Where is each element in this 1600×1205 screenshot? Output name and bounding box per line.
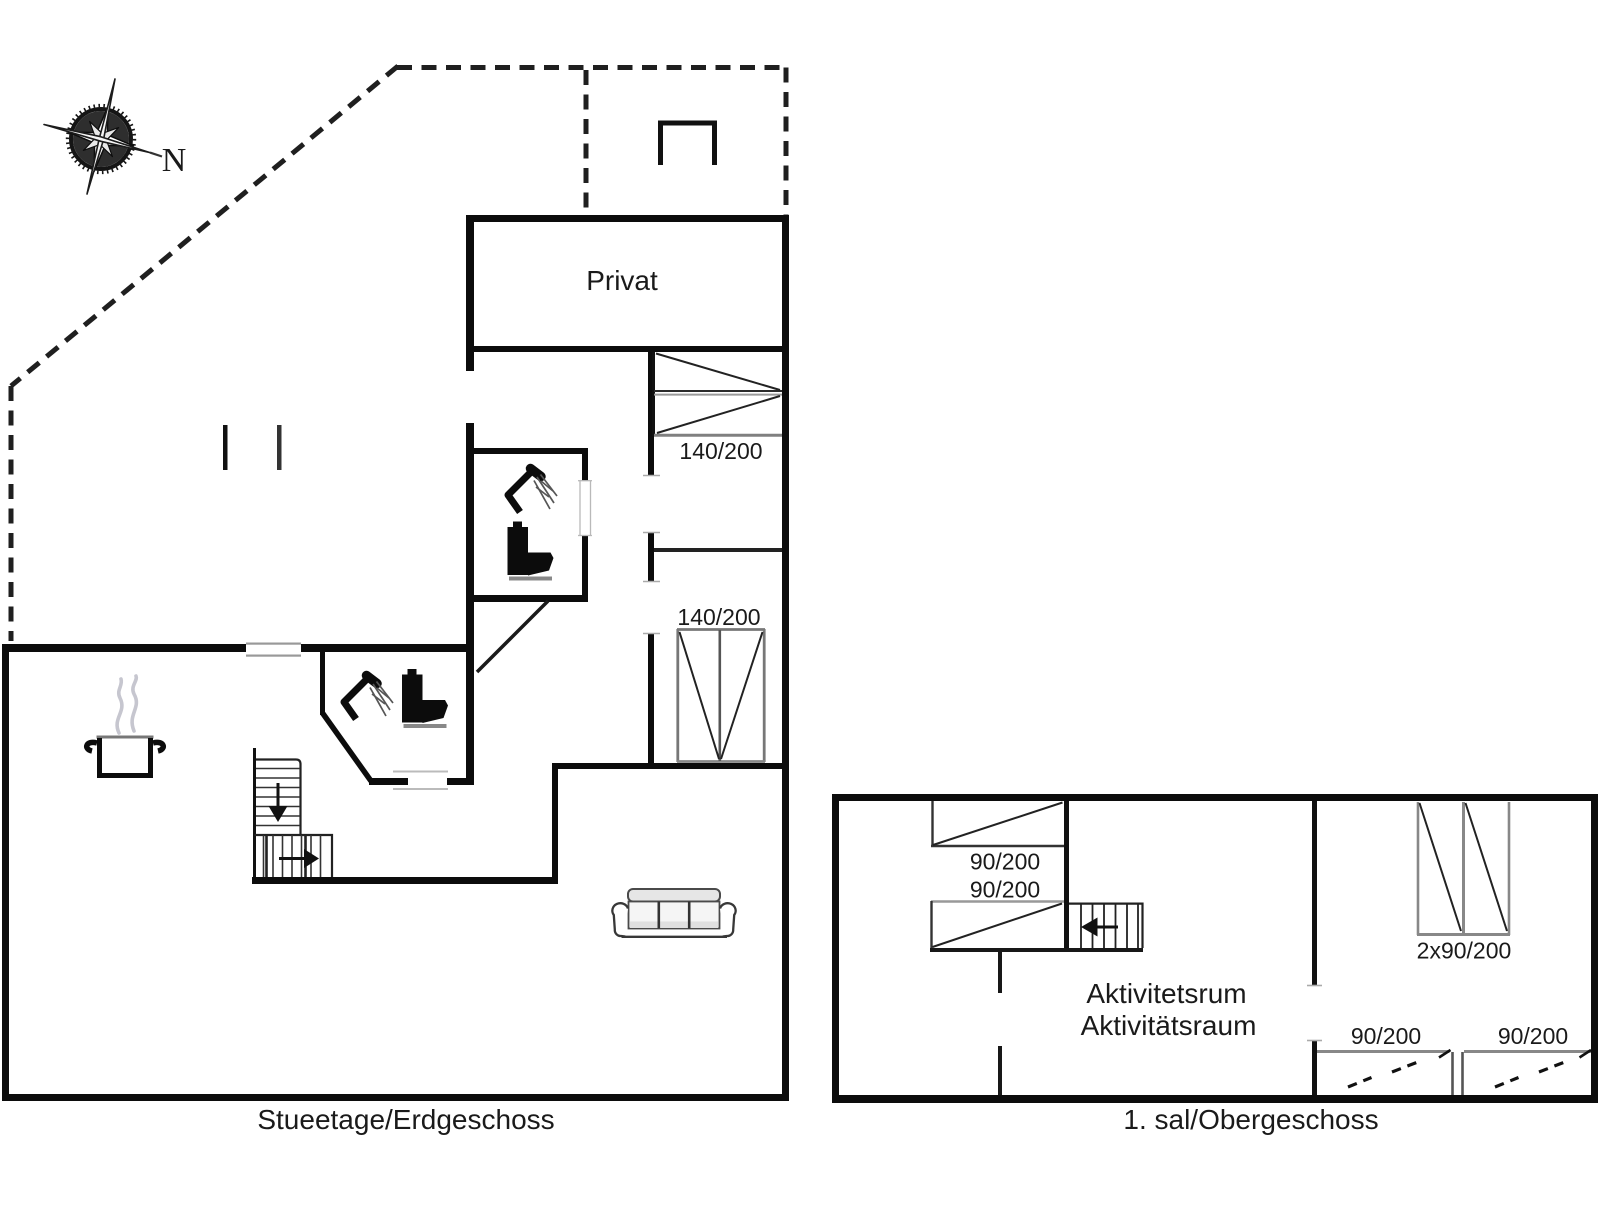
svg-text:Aktivitätsraum: Aktivitätsraum	[1081, 1010, 1257, 1041]
svg-text:140/200: 140/200	[677, 604, 760, 630]
svg-text:90/200: 90/200	[970, 849, 1040, 875]
svg-text:1. sal/Obergeschoss: 1. sal/Obergeschoss	[1123, 1104, 1378, 1135]
svg-text:N: N	[162, 142, 187, 179]
svg-text:90/200: 90/200	[970, 877, 1040, 903]
svg-text:Aktivitetsrum: Aktivitetsrum	[1086, 978, 1246, 1009]
svg-text:Stueetage/Erdgeschoss: Stueetage/Erdgeschoss	[257, 1104, 554, 1135]
svg-text:90/200: 90/200	[1351, 1023, 1421, 1049]
svg-text:140/200: 140/200	[679, 438, 762, 464]
svg-text:90/200: 90/200	[1498, 1023, 1568, 1049]
svg-text:2x90/200: 2x90/200	[1417, 938, 1512, 964]
svg-text:Privat: Privat	[586, 265, 658, 296]
